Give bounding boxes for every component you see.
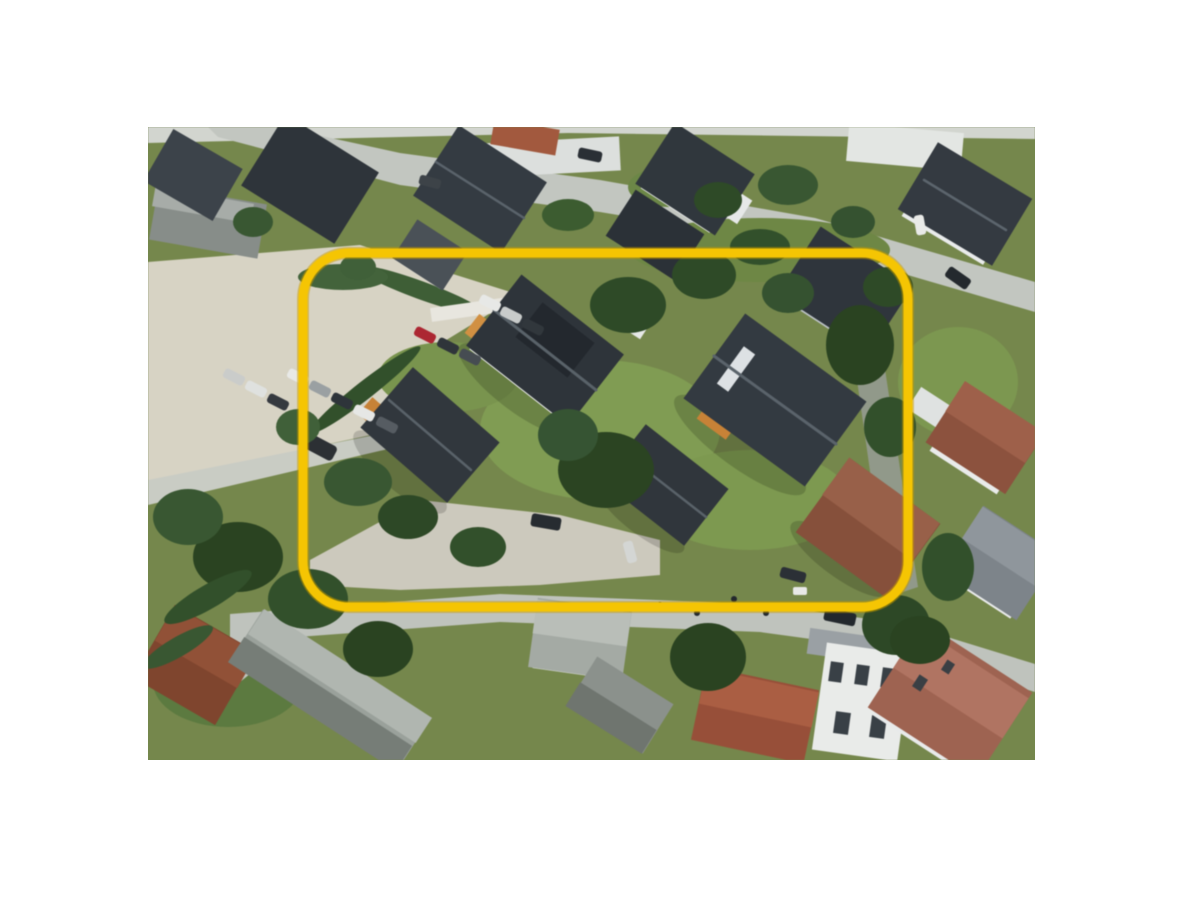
tree-canopy	[343, 621, 413, 677]
aerial-photo	[148, 127, 1035, 760]
tree-canopy	[762, 273, 814, 313]
tree-canopy	[378, 495, 438, 539]
window	[854, 664, 870, 686]
tree-canopy	[694, 182, 742, 218]
tree-canopy	[826, 305, 894, 385]
aerial-photo-scene	[148, 127, 1035, 760]
tree-canopy	[922, 533, 974, 601]
tree-canopy	[324, 458, 392, 506]
tree-canopy	[538, 409, 598, 461]
tree-canopy	[590, 277, 666, 333]
window	[828, 661, 844, 683]
tree-canopy	[542, 199, 594, 231]
tree-canopy	[450, 527, 506, 567]
window	[833, 711, 851, 735]
tree-canopy	[233, 207, 273, 237]
car	[793, 587, 807, 595]
tree-canopy	[153, 489, 223, 545]
tree-canopy	[758, 165, 818, 205]
page-background	[0, 0, 1200, 900]
tree-canopy	[831, 206, 875, 238]
tree-canopy	[670, 623, 746, 691]
tree-canopy	[890, 616, 950, 664]
